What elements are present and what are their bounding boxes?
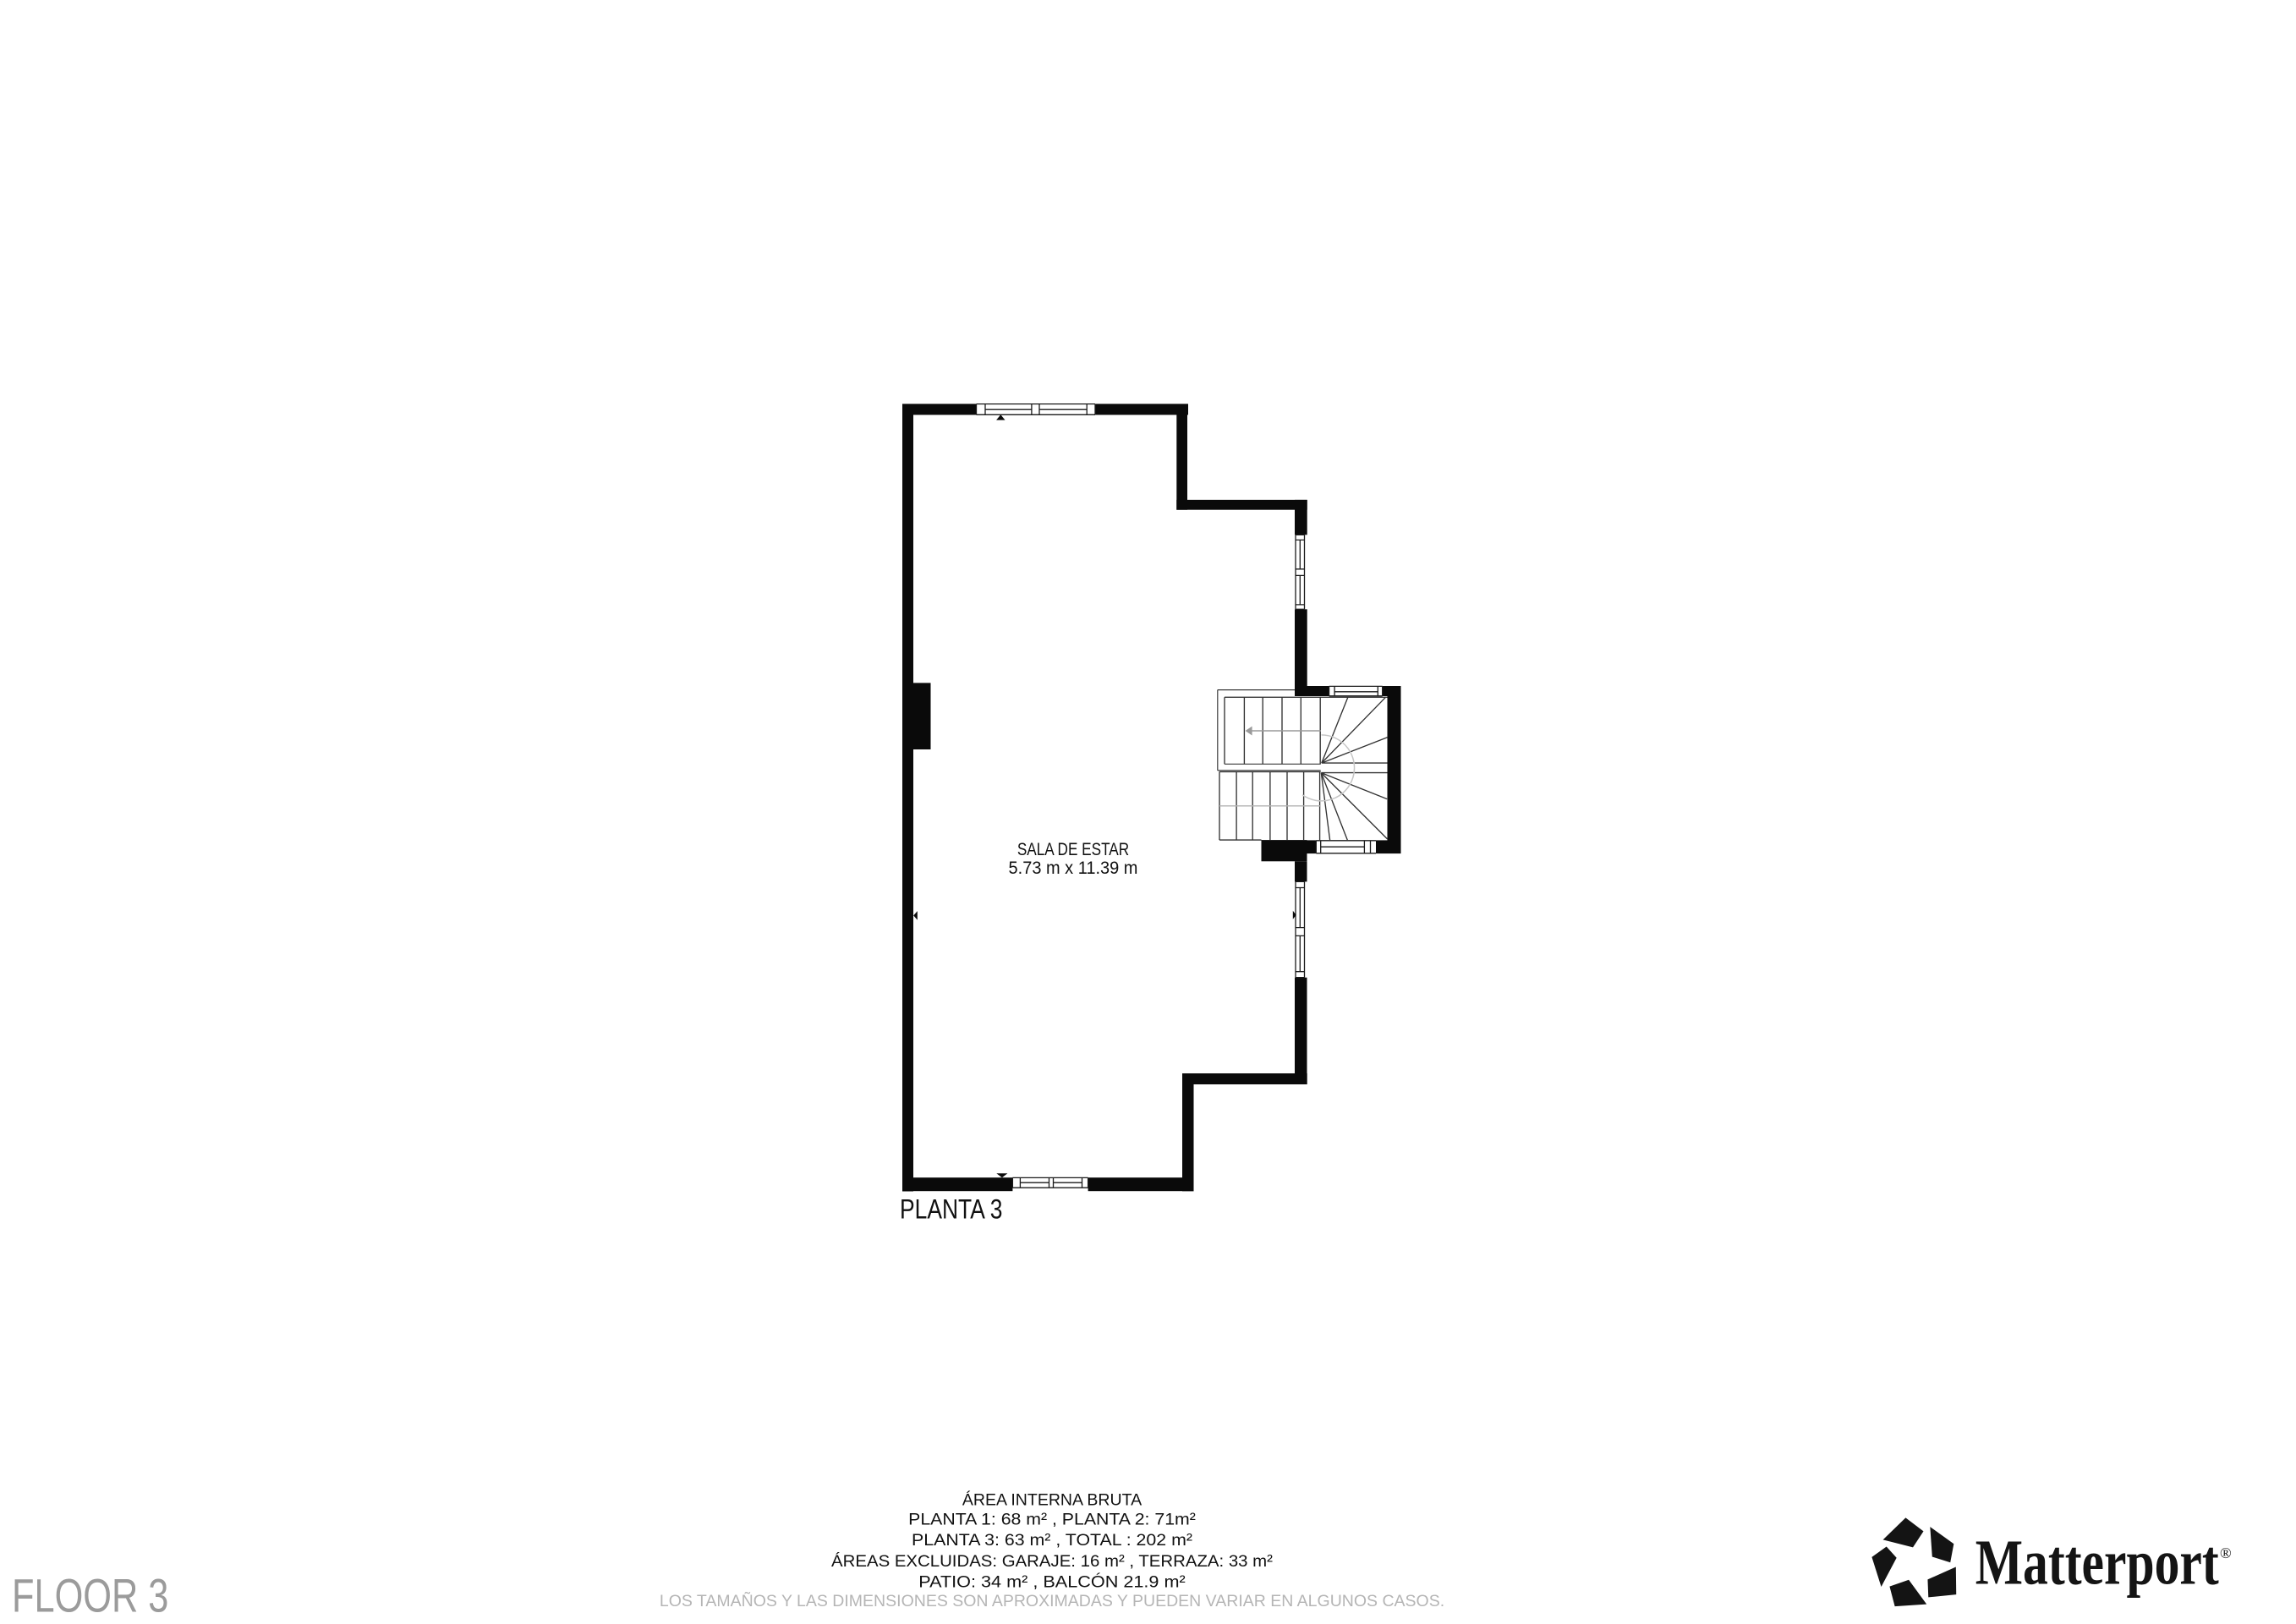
svg-text:PLANTA 1: 68 m² , PLANTA 2: 71: PLANTA 1: 68 m² , PLANTA 2: 71m²: [908, 1510, 1196, 1528]
svg-text:FLOOR 3: FLOOR 3: [12, 1569, 168, 1621]
svg-text:ÁREA INTERNA BRUTA: ÁREA INTERNA BRUTA: [962, 1490, 1143, 1509]
svg-text:ÁREAS EXCLUIDAS: GARAJE: 16 m²: ÁREAS EXCLUIDAS: GARAJE: 16 m² , TERRAZA…: [831, 1551, 1273, 1571]
svg-text:®: ®: [2220, 1544, 2232, 1561]
svg-text:5.73 m x 11.39 m: 5.73 m x 11.39 m: [1009, 858, 1138, 878]
svg-text:PLANTA 3: PLANTA 3: [900, 1193, 1002, 1224]
svg-text:PLANTA 3: 63 m² , TOTAL : 202: PLANTA 3: 63 m² , TOTAL : 202 m²: [912, 1531, 1192, 1550]
svg-text:LOS TAMAÑOS Y LAS DIMENSIONES: LOS TAMAÑOS Y LAS DIMENSIONES SON APROXI…: [660, 1590, 1444, 1610]
svg-text:SALA DE ESTAR: SALA DE ESTAR: [1017, 839, 1129, 859]
svg-text:PATIO: 34 m² , BALCÓN 21.9 m²: PATIO: 34 m² , BALCÓN 21.9 m²: [918, 1572, 1186, 1592]
svg-text:Matterport: Matterport: [1975, 1527, 2219, 1598]
